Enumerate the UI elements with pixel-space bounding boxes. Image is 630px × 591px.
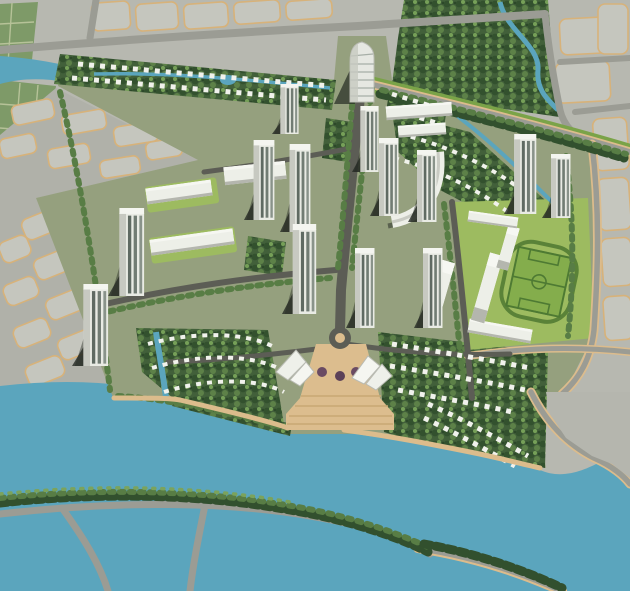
roundabout-island <box>335 333 345 343</box>
plaza-tree-2 <box>335 371 345 381</box>
masterplan-rendering <box>0 0 630 591</box>
plaza-tree-1 <box>317 367 327 377</box>
scene-canvas <box>0 0 630 591</box>
median-grove-2 <box>244 236 286 276</box>
farm-field-north <box>0 2 38 66</box>
